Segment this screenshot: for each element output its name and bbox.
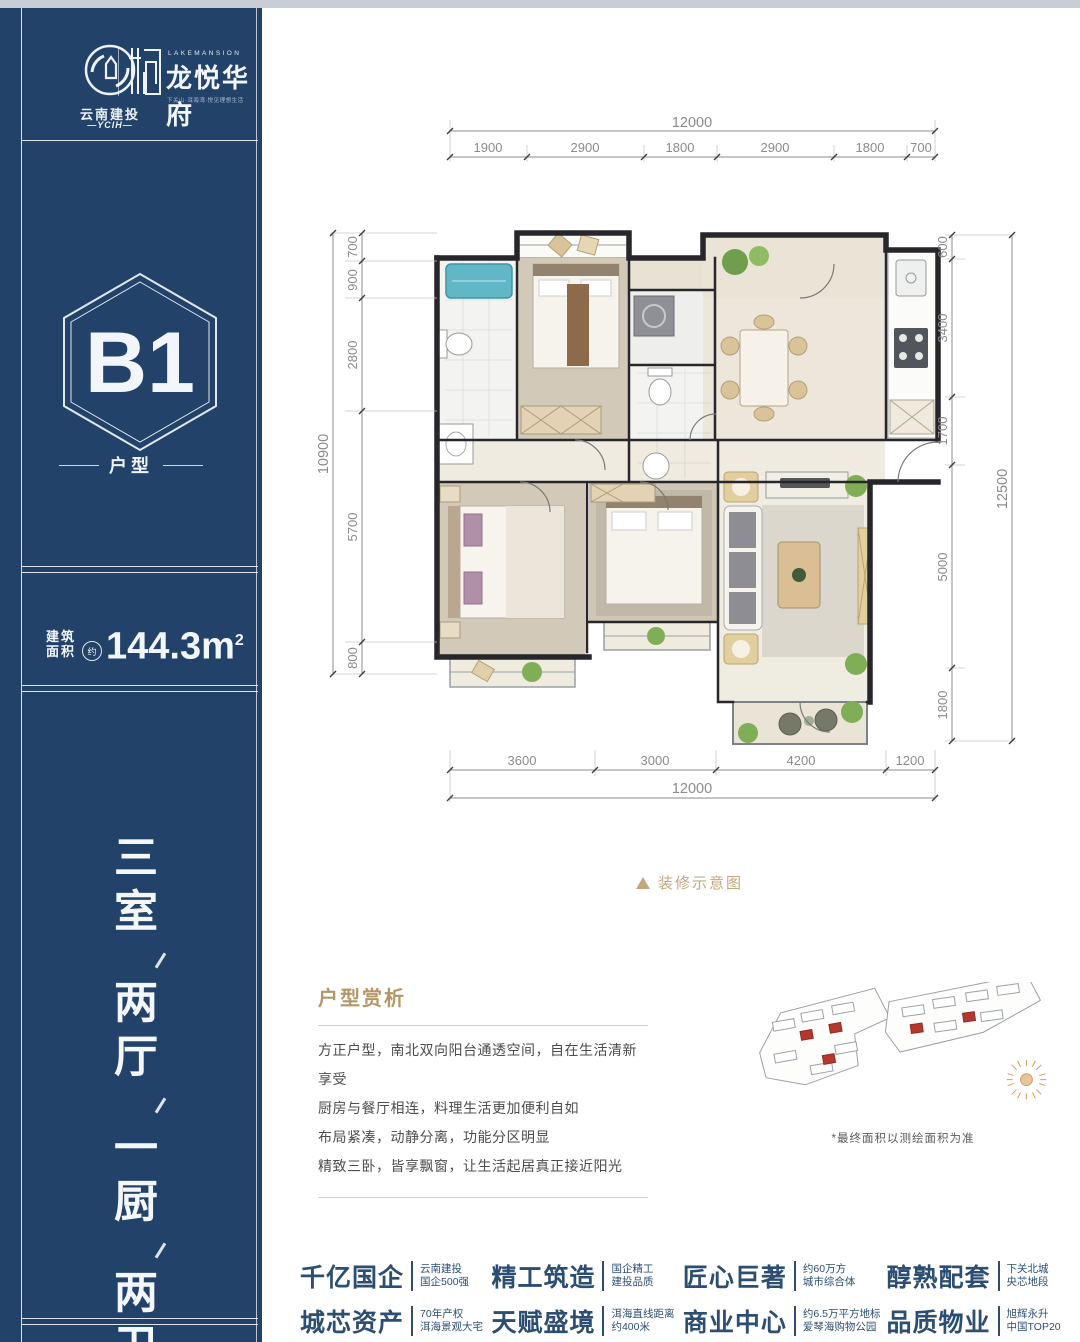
feature-line: 约60万方 bbox=[803, 1263, 846, 1275]
flyer-page: 云南建投 —YCIH— LAKEMANSION 龙悦华府 下关山·洱海湾·悦见理… bbox=[0, 0, 1080, 1342]
feature-line: 国企500强 bbox=[420, 1276, 469, 1288]
rooms-group-1: 三室 bbox=[109, 834, 153, 942]
toilet bbox=[446, 333, 472, 355]
sidebar-divider-3a bbox=[21, 685, 258, 686]
svg-text:900: 900 bbox=[345, 269, 360, 291]
rooms-group-3: 一厨 bbox=[109, 1124, 153, 1232]
feature-line: 城市综合体 bbox=[803, 1276, 856, 1288]
floor-plan: 12000 1900 2900 1800 2900 1800 700 3600 … bbox=[315, 105, 1040, 850]
feature-divider bbox=[411, 1261, 413, 1291]
feature-title: 匠心巨著 bbox=[683, 1258, 787, 1294]
slash-icon bbox=[154, 1097, 166, 1113]
feature-divider bbox=[602, 1306, 604, 1336]
plan-caption-text: 装修示意图 bbox=[658, 872, 743, 893]
svg-text:12000: 12000 bbox=[672, 781, 712, 797]
feature-line: 70年产权 bbox=[420, 1308, 463, 1320]
feature-title: 城芯资产 bbox=[300, 1303, 404, 1339]
yue-monogram-icon bbox=[128, 44, 162, 98]
feature-title: 天赋盛境 bbox=[491, 1303, 595, 1339]
svg-text:1900: 1900 bbox=[474, 140, 503, 155]
area-value: 144.3m2 bbox=[106, 622, 244, 666]
features-grid: 千亿国企 云南建投国企500强 城芯资产 70年产权洱海景观大宅 精工筑造 国企… bbox=[300, 1258, 1072, 1339]
feature-title: 品质物业 bbox=[887, 1303, 991, 1339]
feature-line: 旭辉永升 bbox=[1007, 1308, 1049, 1320]
svg-text:1800: 1800 bbox=[935, 691, 950, 720]
developer-abbr: —YCIH— bbox=[52, 120, 168, 130]
feature-divider bbox=[794, 1261, 796, 1291]
plant bbox=[722, 249, 748, 275]
svg-text:2900: 2900 bbox=[571, 140, 600, 155]
sink bbox=[643, 453, 669, 479]
sidebar: 云南建投 —YCIH— LAKEMANSION 龙悦华府 下关山·洱海湾·悦见理… bbox=[0, 8, 262, 1342]
feature-title: 千亿国企 bbox=[300, 1258, 404, 1294]
siteplan-note: *最终面积以测绘面积为准 bbox=[740, 1130, 1066, 1146]
feature-line: 建投品质 bbox=[611, 1276, 653, 1288]
sidebar-divider-1 bbox=[21, 140, 258, 141]
dash-right bbox=[163, 465, 203, 466]
plant bbox=[522, 662, 542, 682]
logo-row: 云南建投 —YCIH— LAKEMANSION 龙悦华府 下关山·洱海湾·悦见理… bbox=[30, 36, 260, 136]
feature-line: 洱海直线距离 bbox=[611, 1308, 674, 1320]
analysis-line: 厨房与餐厅相连，料理生活更加便利自如 bbox=[318, 1094, 648, 1123]
svg-text:10900: 10900 bbox=[316, 434, 332, 474]
area-label-2: 面积 bbox=[46, 644, 76, 659]
svg-text:1800: 1800 bbox=[666, 140, 695, 155]
area-sup: 2 bbox=[235, 632, 244, 649]
feature-item: 城芯资产 70年产权洱海景观大宅 bbox=[300, 1303, 485, 1339]
slash-icon bbox=[154, 1242, 166, 1258]
stove bbox=[894, 328, 928, 368]
feature-divider bbox=[998, 1261, 1000, 1291]
feature-item: 千亿国企 云南建投国企500强 bbox=[300, 1258, 485, 1294]
toilet bbox=[649, 379, 671, 405]
svg-text:5000: 5000 bbox=[935, 553, 950, 582]
svg-text:600: 600 bbox=[935, 236, 950, 258]
feature-line: 云南建投 bbox=[420, 1263, 462, 1275]
plant bbox=[749, 246, 769, 266]
feature-line: 洱海景观大宅 bbox=[420, 1321, 483, 1333]
svg-text:1200: 1200 bbox=[896, 753, 925, 768]
svg-text:12500: 12500 bbox=[995, 469, 1011, 509]
rooms-summary-vertical: 三室 两厅 一厨 两卫 bbox=[0, 834, 262, 1342]
rooms-group-4: 两卫 bbox=[109, 1269, 153, 1342]
compass-sun-icon bbox=[1007, 1060, 1047, 1100]
plan-caption: 装修示意图 bbox=[636, 872, 743, 893]
analysis-section: 户型赏析 方正户型，南北双向阳台通透空间，自在生活清新享受 厨房与餐厅相连，料理… bbox=[318, 982, 648, 1208]
svg-text:2800: 2800 bbox=[345, 341, 360, 370]
plant bbox=[841, 701, 863, 723]
top-strip bbox=[0, 0, 1080, 8]
feature-line: 下关北城 bbox=[1007, 1263, 1049, 1275]
svg-text:3600: 3600 bbox=[508, 753, 537, 768]
feature-item: 精工筑造 国企精工建投品质 bbox=[491, 1258, 676, 1294]
svg-text:1700: 1700 bbox=[935, 417, 950, 446]
svg-text:800: 800 bbox=[345, 647, 360, 669]
svg-text:5700: 5700 bbox=[345, 513, 360, 542]
dining-table bbox=[740, 330, 788, 406]
analysis-title: 户型赏析 bbox=[318, 982, 648, 1011]
feature-item: 天赋盛境 洱海直线距离约400米 bbox=[491, 1303, 676, 1339]
site-plan bbox=[738, 982, 1064, 1114]
feature-line: 约400米 bbox=[611, 1321, 650, 1333]
balcony-chair bbox=[779, 713, 801, 735]
logo-divider bbox=[118, 48, 119, 96]
triangle-icon bbox=[636, 877, 650, 889]
project-name-cn: 龙悦华府 bbox=[166, 58, 276, 132]
analysis-line: 布局紧凑，动静分离，功能分区明显 bbox=[318, 1123, 648, 1152]
feature-item: 商业中心 约6.5万平方地标爱琴海购物公园 bbox=[683, 1303, 881, 1339]
svg-text:700: 700 bbox=[910, 140, 932, 155]
unit-code: B1 bbox=[85, 315, 195, 411]
analysis-line: 精致三卧，皆享飘窗，让生活起居真正接近阳光 bbox=[318, 1152, 648, 1181]
dash-left bbox=[59, 465, 99, 466]
feature-line: 中国TOP20 bbox=[1007, 1321, 1061, 1333]
feature-divider bbox=[411, 1306, 413, 1336]
svg-text:1800: 1800 bbox=[856, 140, 885, 155]
wardrobe bbox=[521, 406, 601, 434]
washer bbox=[634, 296, 674, 336]
unit-badge: B1 bbox=[40, 270, 240, 454]
divider bbox=[318, 1197, 648, 1198]
svg-text:700: 700 bbox=[345, 236, 360, 258]
feature-divider bbox=[794, 1306, 796, 1336]
project-name-en: LAKEMANSION bbox=[168, 50, 268, 57]
area-label-1: 建筑 bbox=[46, 629, 76, 644]
plant bbox=[738, 723, 758, 743]
plant bbox=[647, 627, 665, 645]
unit-type-row: 户型 bbox=[0, 452, 262, 478]
sidebar-divider-2b bbox=[21, 572, 258, 573]
sidebar-divider-2a bbox=[21, 566, 258, 567]
plant bbox=[845, 653, 867, 675]
svg-text:12000: 12000 bbox=[672, 115, 712, 131]
svg-text:2900: 2900 bbox=[761, 140, 790, 155]
feature-item: 品质物业 旭辉永升中国TOP20 bbox=[887, 1303, 1072, 1339]
feature-line: 央芯地段 bbox=[1007, 1276, 1049, 1288]
project-tagline: 下关山·洱海湾·悦见理想生活 bbox=[167, 96, 277, 104]
feature-item: 匠心巨著 约60万方城市综合体 bbox=[683, 1258, 881, 1294]
svg-text:3400: 3400 bbox=[935, 314, 950, 343]
feature-line: 约6.5万平方地标 bbox=[803, 1308, 881, 1320]
approx-badge: 约 bbox=[82, 641, 102, 661]
rooms-group-2: 两厅 bbox=[109, 979, 153, 1087]
feature-divider bbox=[602, 1261, 604, 1291]
feature-item: 醇熟配套 下关北城央芯地段 bbox=[887, 1258, 1072, 1294]
feature-divider bbox=[998, 1306, 1000, 1336]
feature-line: 国企精工 bbox=[611, 1263, 653, 1275]
feature-title: 精工筑造 bbox=[491, 1258, 595, 1294]
feature-title: 醇熟配套 bbox=[887, 1258, 991, 1294]
plant bbox=[845, 475, 867, 497]
unit-type-label: 户型 bbox=[109, 452, 153, 478]
svg-text:4200: 4200 bbox=[787, 753, 816, 768]
divider bbox=[318, 1025, 648, 1026]
analysis-line: 方正户型，南北双向阳台通透空间，自在生活清新享受 bbox=[318, 1036, 648, 1094]
sidebar-divider-3b bbox=[21, 691, 258, 692]
feature-line: 爱琴海购物公园 bbox=[803, 1321, 877, 1333]
slash-icon bbox=[154, 952, 166, 968]
feature-title: 商业中心 bbox=[683, 1303, 787, 1339]
balcony-chair bbox=[815, 709, 837, 731]
sink bbox=[439, 424, 473, 464]
svg-text:3000: 3000 bbox=[641, 753, 670, 768]
area-row: 建筑 面积 约 144.3m2 bbox=[46, 616, 256, 672]
